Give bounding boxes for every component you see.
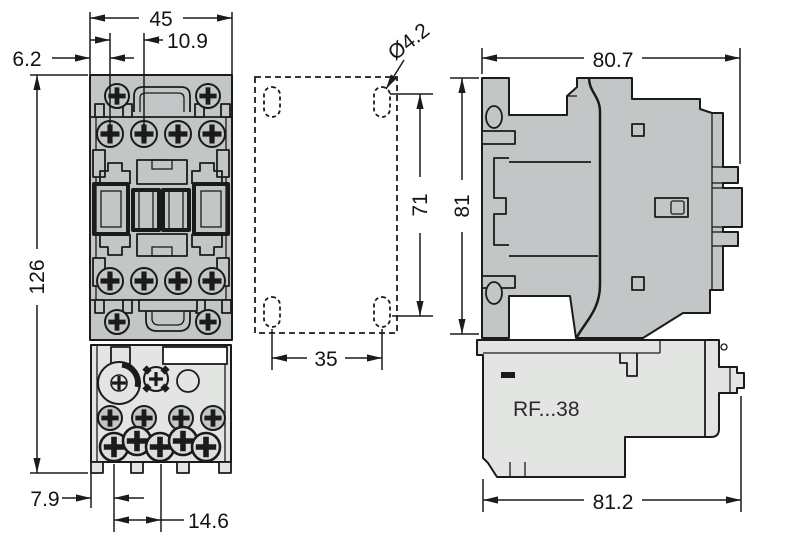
side-view: RF...38 xyxy=(450,46,744,514)
screw-icon xyxy=(165,268,191,294)
dim-label-hole-dia: Ø4.2 xyxy=(384,19,434,65)
dim-label-7-9: 7.9 xyxy=(30,488,59,511)
dim-label-81: 81 xyxy=(451,194,474,217)
screw-icon xyxy=(196,84,220,108)
screw-icon xyxy=(199,268,225,294)
drawing-svg: 45 10.9 6.2 126 7.9 14.6 xyxy=(0,0,788,556)
screw-icon xyxy=(98,406,122,430)
mount-slot xyxy=(374,87,390,117)
mount-hole-side xyxy=(486,106,502,128)
dimension-drawing: 45 10.9 6.2 126 7.9 14.6 xyxy=(0,0,788,556)
dim-label-80-7: 80.7 xyxy=(593,49,634,72)
screw-icon xyxy=(105,310,129,334)
screw-icon xyxy=(201,406,225,430)
screw-icon xyxy=(105,84,129,108)
screw-icon xyxy=(196,310,220,334)
overload-relay-side: RF...38 xyxy=(477,340,744,477)
drill-dimensions: Ø4.2 71 35 xyxy=(272,19,434,371)
front-view: 45 10.9 6.2 126 7.9 14.6 xyxy=(12,5,232,533)
dim-label-81-2: 81.2 xyxy=(593,491,634,514)
mount-slot xyxy=(264,297,280,327)
overload-relay-front xyxy=(91,345,231,473)
mounting-drill-plan: Ø4.2 71 35 xyxy=(255,19,434,371)
relay-adjust-dial xyxy=(98,362,140,404)
mount-slot xyxy=(264,87,280,117)
mount-hole-side xyxy=(486,282,502,304)
contactor-front xyxy=(90,75,232,340)
relay-foot xyxy=(91,462,103,473)
relay-test-button xyxy=(144,367,168,391)
relay-foot xyxy=(219,462,231,473)
dim-label-10-9: 10.9 xyxy=(167,30,208,53)
screw-icon xyxy=(131,268,157,294)
dim-label-width-45: 45 xyxy=(149,8,172,31)
mount-slot xyxy=(374,297,390,327)
dim-label-6-2: 6.2 xyxy=(12,48,41,71)
dim-label-14-6: 14.6 xyxy=(188,510,229,533)
device-outline-dashed xyxy=(255,77,397,333)
terminal-screw-icon xyxy=(192,433,220,461)
relay-side-slot xyxy=(501,372,515,378)
contactor-side xyxy=(482,78,742,338)
relay-label-window xyxy=(163,347,227,364)
mount-slot-side xyxy=(482,131,515,144)
relay-side-pin xyxy=(721,344,727,350)
relay-model-label: RF...38 xyxy=(513,398,580,421)
dim-label-71: 71 xyxy=(409,193,432,216)
screw-icon xyxy=(199,121,225,147)
screw-icon xyxy=(165,121,191,147)
relay-reset-button xyxy=(177,370,199,392)
dim-label-35: 35 xyxy=(314,348,337,371)
dim-label-height-126: 126 xyxy=(26,259,49,294)
screw-icon xyxy=(97,268,123,294)
